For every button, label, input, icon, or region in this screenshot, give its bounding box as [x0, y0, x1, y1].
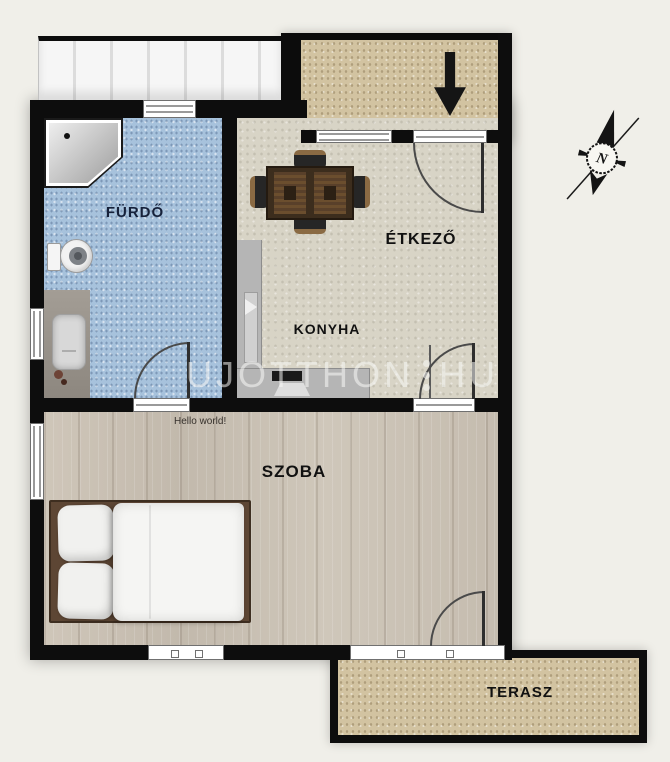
shower-drain	[64, 133, 70, 139]
floor-plan: UJOTTHON HU FÜRDŐ ÉTKEZŐ KONYHA SZOBA TE…	[0, 0, 670, 762]
window-bathroom-top	[143, 100, 196, 118]
window-bedroom-bottom	[148, 645, 224, 660]
watermark-text-left: UJOTTHON	[186, 354, 414, 396]
toilet-tank	[47, 243, 61, 271]
room-label-kitchen: KONYHA	[287, 321, 367, 337]
bathroom-accessory	[61, 379, 67, 385]
room-label-terrace: TERASZ	[479, 684, 561, 701]
window-bathroom-left	[30, 308, 44, 360]
pillow	[57, 504, 114, 561]
room-label-bedroom: SZOBA	[254, 462, 334, 482]
entry-door-sill	[413, 130, 487, 143]
toilet-drain	[74, 252, 82, 260]
pillow	[57, 562, 114, 619]
window-bedroom-left	[30, 423, 44, 500]
dining-table-panel	[314, 172, 346, 214]
wall-left	[30, 100, 44, 660]
room-label-bathroom: FÜRDŐ	[100, 204, 170, 221]
watermark-dots-icon	[423, 360, 430, 391]
terrace-door-leaf	[482, 591, 485, 646]
watermark-text-right: HU	[439, 354, 499, 396]
wall-right	[498, 33, 512, 660]
bed-duvet	[113, 503, 244, 621]
kitchen-door-sill	[413, 398, 475, 412]
room-label-dining: ÉTKEZŐ	[378, 231, 464, 249]
dining-table-panel	[274, 172, 306, 214]
washbasin	[52, 314, 86, 370]
bathroom-accessory	[54, 370, 63, 379]
terrace-slider-sill	[350, 645, 505, 660]
bathroom-door-sill	[133, 398, 190, 412]
entry-door-leaf	[481, 143, 484, 213]
watermark: UJOTTHON HU	[186, 350, 499, 400]
window-dining-top	[316, 130, 392, 143]
entry-canopy	[38, 36, 281, 100]
washbasin-faucet	[62, 350, 76, 352]
compass-rose-icon: N	[554, 99, 647, 217]
hello-world-annotation: Hello world!	[174, 416, 226, 427]
